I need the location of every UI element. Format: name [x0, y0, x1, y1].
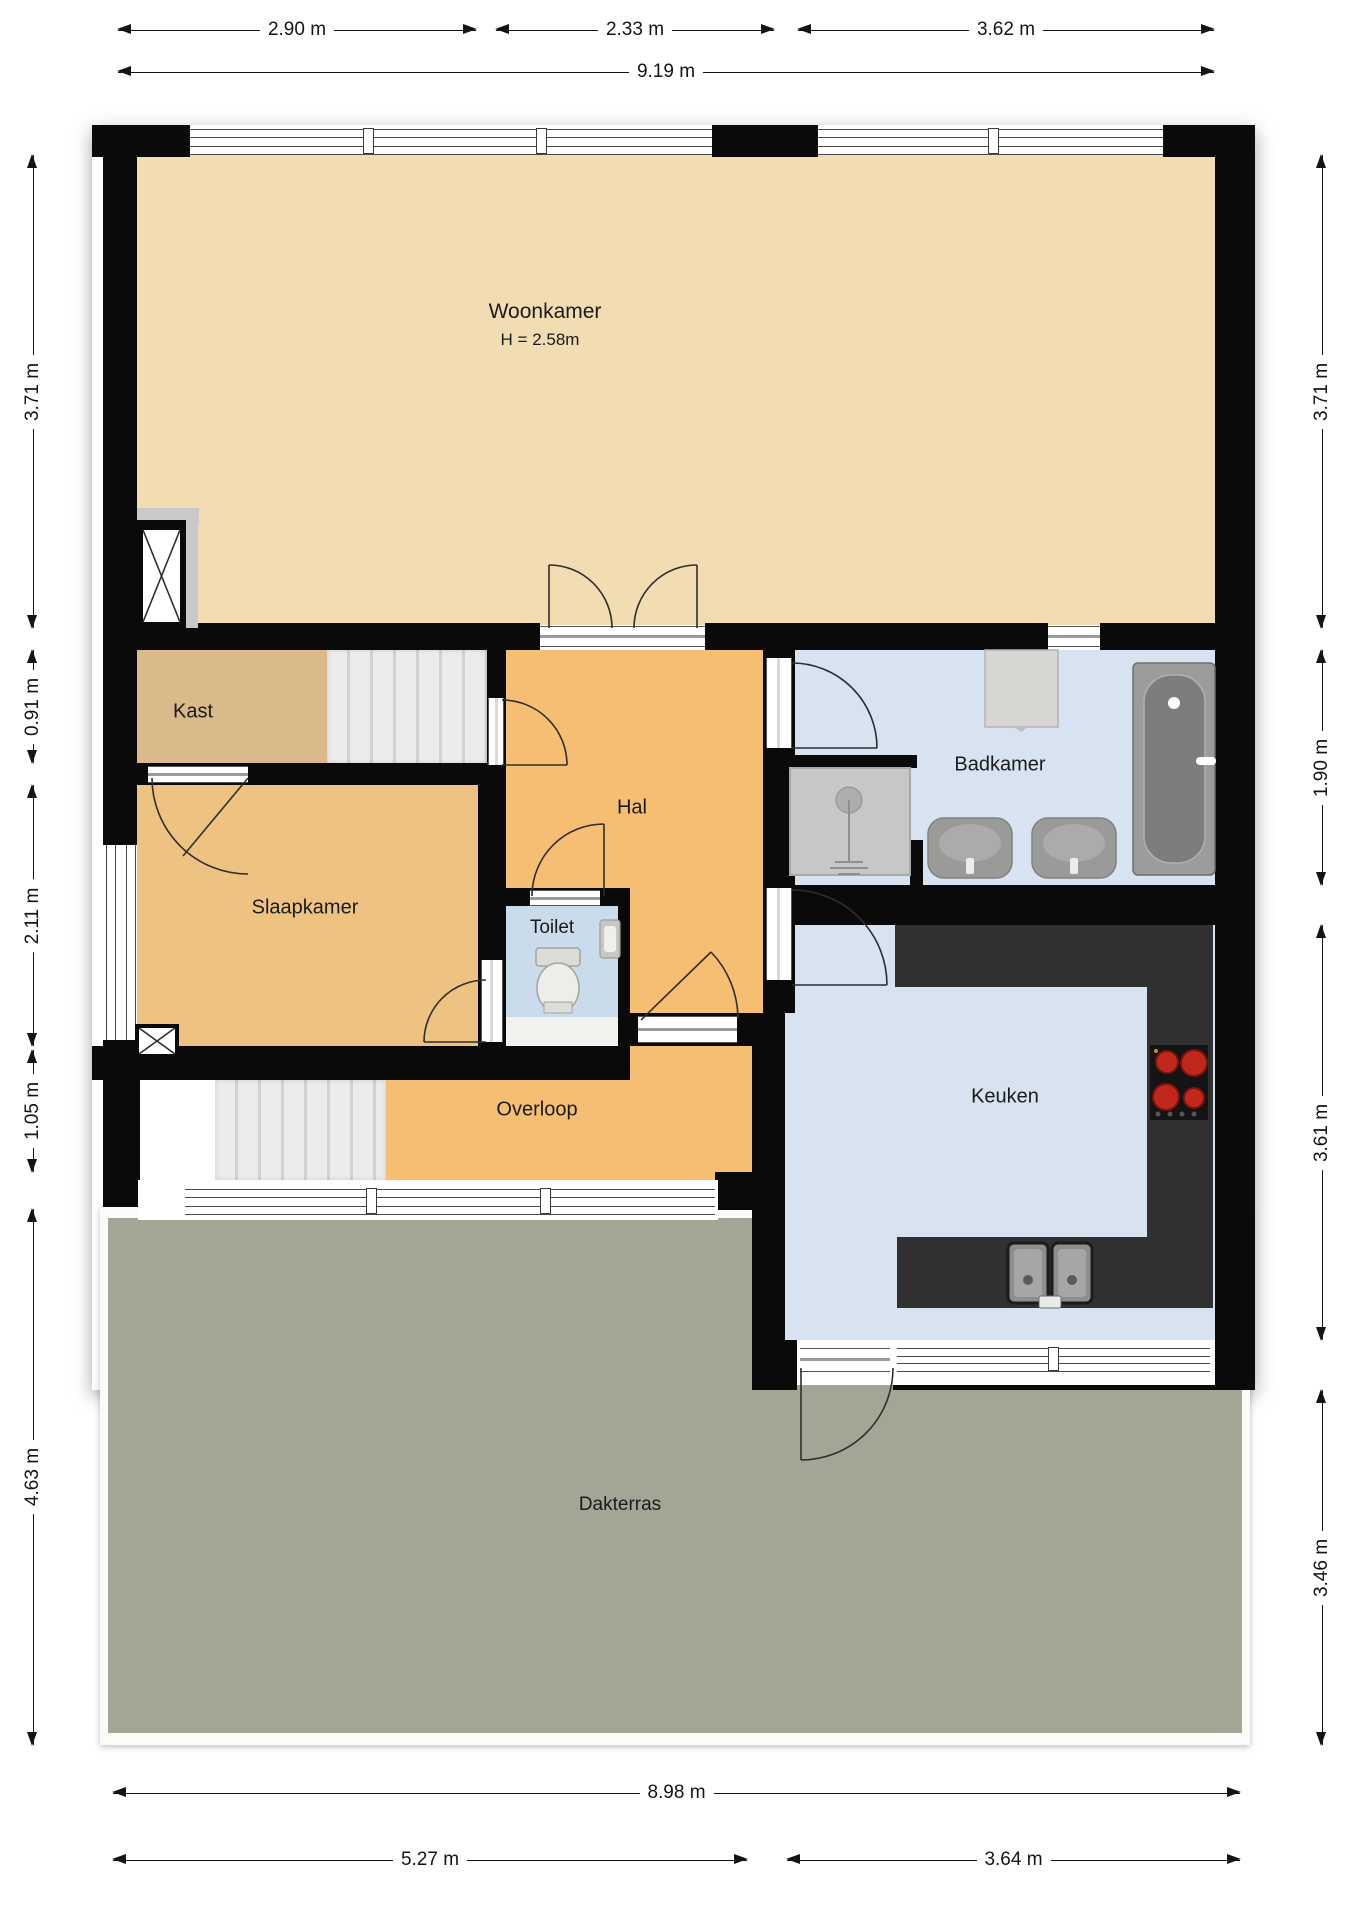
dim-right-2: 1.90 m	[1322, 650, 1323, 885]
label-overloop: Overloop	[496, 1099, 577, 1122]
kitchen-sink	[1008, 1243, 1092, 1308]
dim-bottom-1: 5.27 m	[113, 1860, 747, 1861]
elevator-x-icon	[143, 530, 180, 622]
hand-basin	[600, 920, 620, 958]
dim-left-1: 3.71 m	[33, 155, 34, 628]
washbasin-left	[928, 818, 1012, 878]
toilet-bowl	[536, 948, 580, 1013]
washbasin-right	[1032, 818, 1116, 878]
dim-right-1: 3.71 m	[1322, 155, 1323, 628]
floorplan-canvas: Woonkamer H = 2.58m Kast Hal Badkamer Sl…	[0, 0, 1358, 1920]
duct-x-icon	[139, 1028, 175, 1054]
dim-top-1: 2.90 m	[118, 30, 476, 31]
label-toilet: Toilet	[530, 917, 574, 939]
dim-left-3: 2.11 m	[33, 785, 34, 1046]
dim-top-3: 3.62 m	[798, 30, 1214, 31]
dim-left-5: 4.63 m	[33, 1209, 34, 1745]
dim-right-4: 3.46 m	[1322, 1390, 1323, 1745]
label-dakterras: Dakterras	[579, 1494, 661, 1516]
fixtures-overlay	[0, 0, 1358, 1920]
slaapkamer-door-arc	[424, 980, 486, 1042]
dim-top-2: 2.33 m	[496, 30, 774, 31]
overloop-door-arc	[641, 952, 738, 1020]
label-woonkamer-height: H = 2.58m	[501, 330, 580, 350]
label-hal: Hal	[617, 797, 647, 820]
bathtub	[1133, 663, 1216, 875]
stove-burners	[1153, 1049, 1207, 1117]
label-kast: Kast	[173, 701, 213, 724]
label-slaapkamer: Slaapkamer	[252, 897, 359, 920]
terrace-door-arc	[801, 1368, 893, 1460]
dim-left-2: 0.91 m	[33, 650, 34, 763]
label-keuken: Keuken	[971, 1086, 1039, 1109]
dim-right-3: 3.61 m	[1322, 925, 1323, 1340]
kast-door-arc	[152, 778, 248, 874]
label-badkamer: Badkamer	[954, 754, 1045, 777]
shower	[790, 768, 910, 875]
badkamer-door-arc	[792, 663, 877, 748]
stairs-door-arc	[502, 700, 567, 765]
dim-bottom-2: 3.64 m	[787, 1860, 1240, 1861]
keuken-door-arc	[792, 890, 887, 985]
washer	[985, 650, 1058, 732]
double-door-leaves	[549, 565, 697, 628]
dim-left-4: 1.05 m	[33, 1050, 34, 1172]
double-door-arcs	[549, 565, 697, 628]
label-woonkamer: Woonkamer	[489, 300, 602, 324]
dim-bottom-total: 8.98 m	[113, 1793, 1240, 1794]
toilet-door-arc	[532, 824, 604, 896]
dim-top-total: 9.19 m	[118, 72, 1214, 73]
